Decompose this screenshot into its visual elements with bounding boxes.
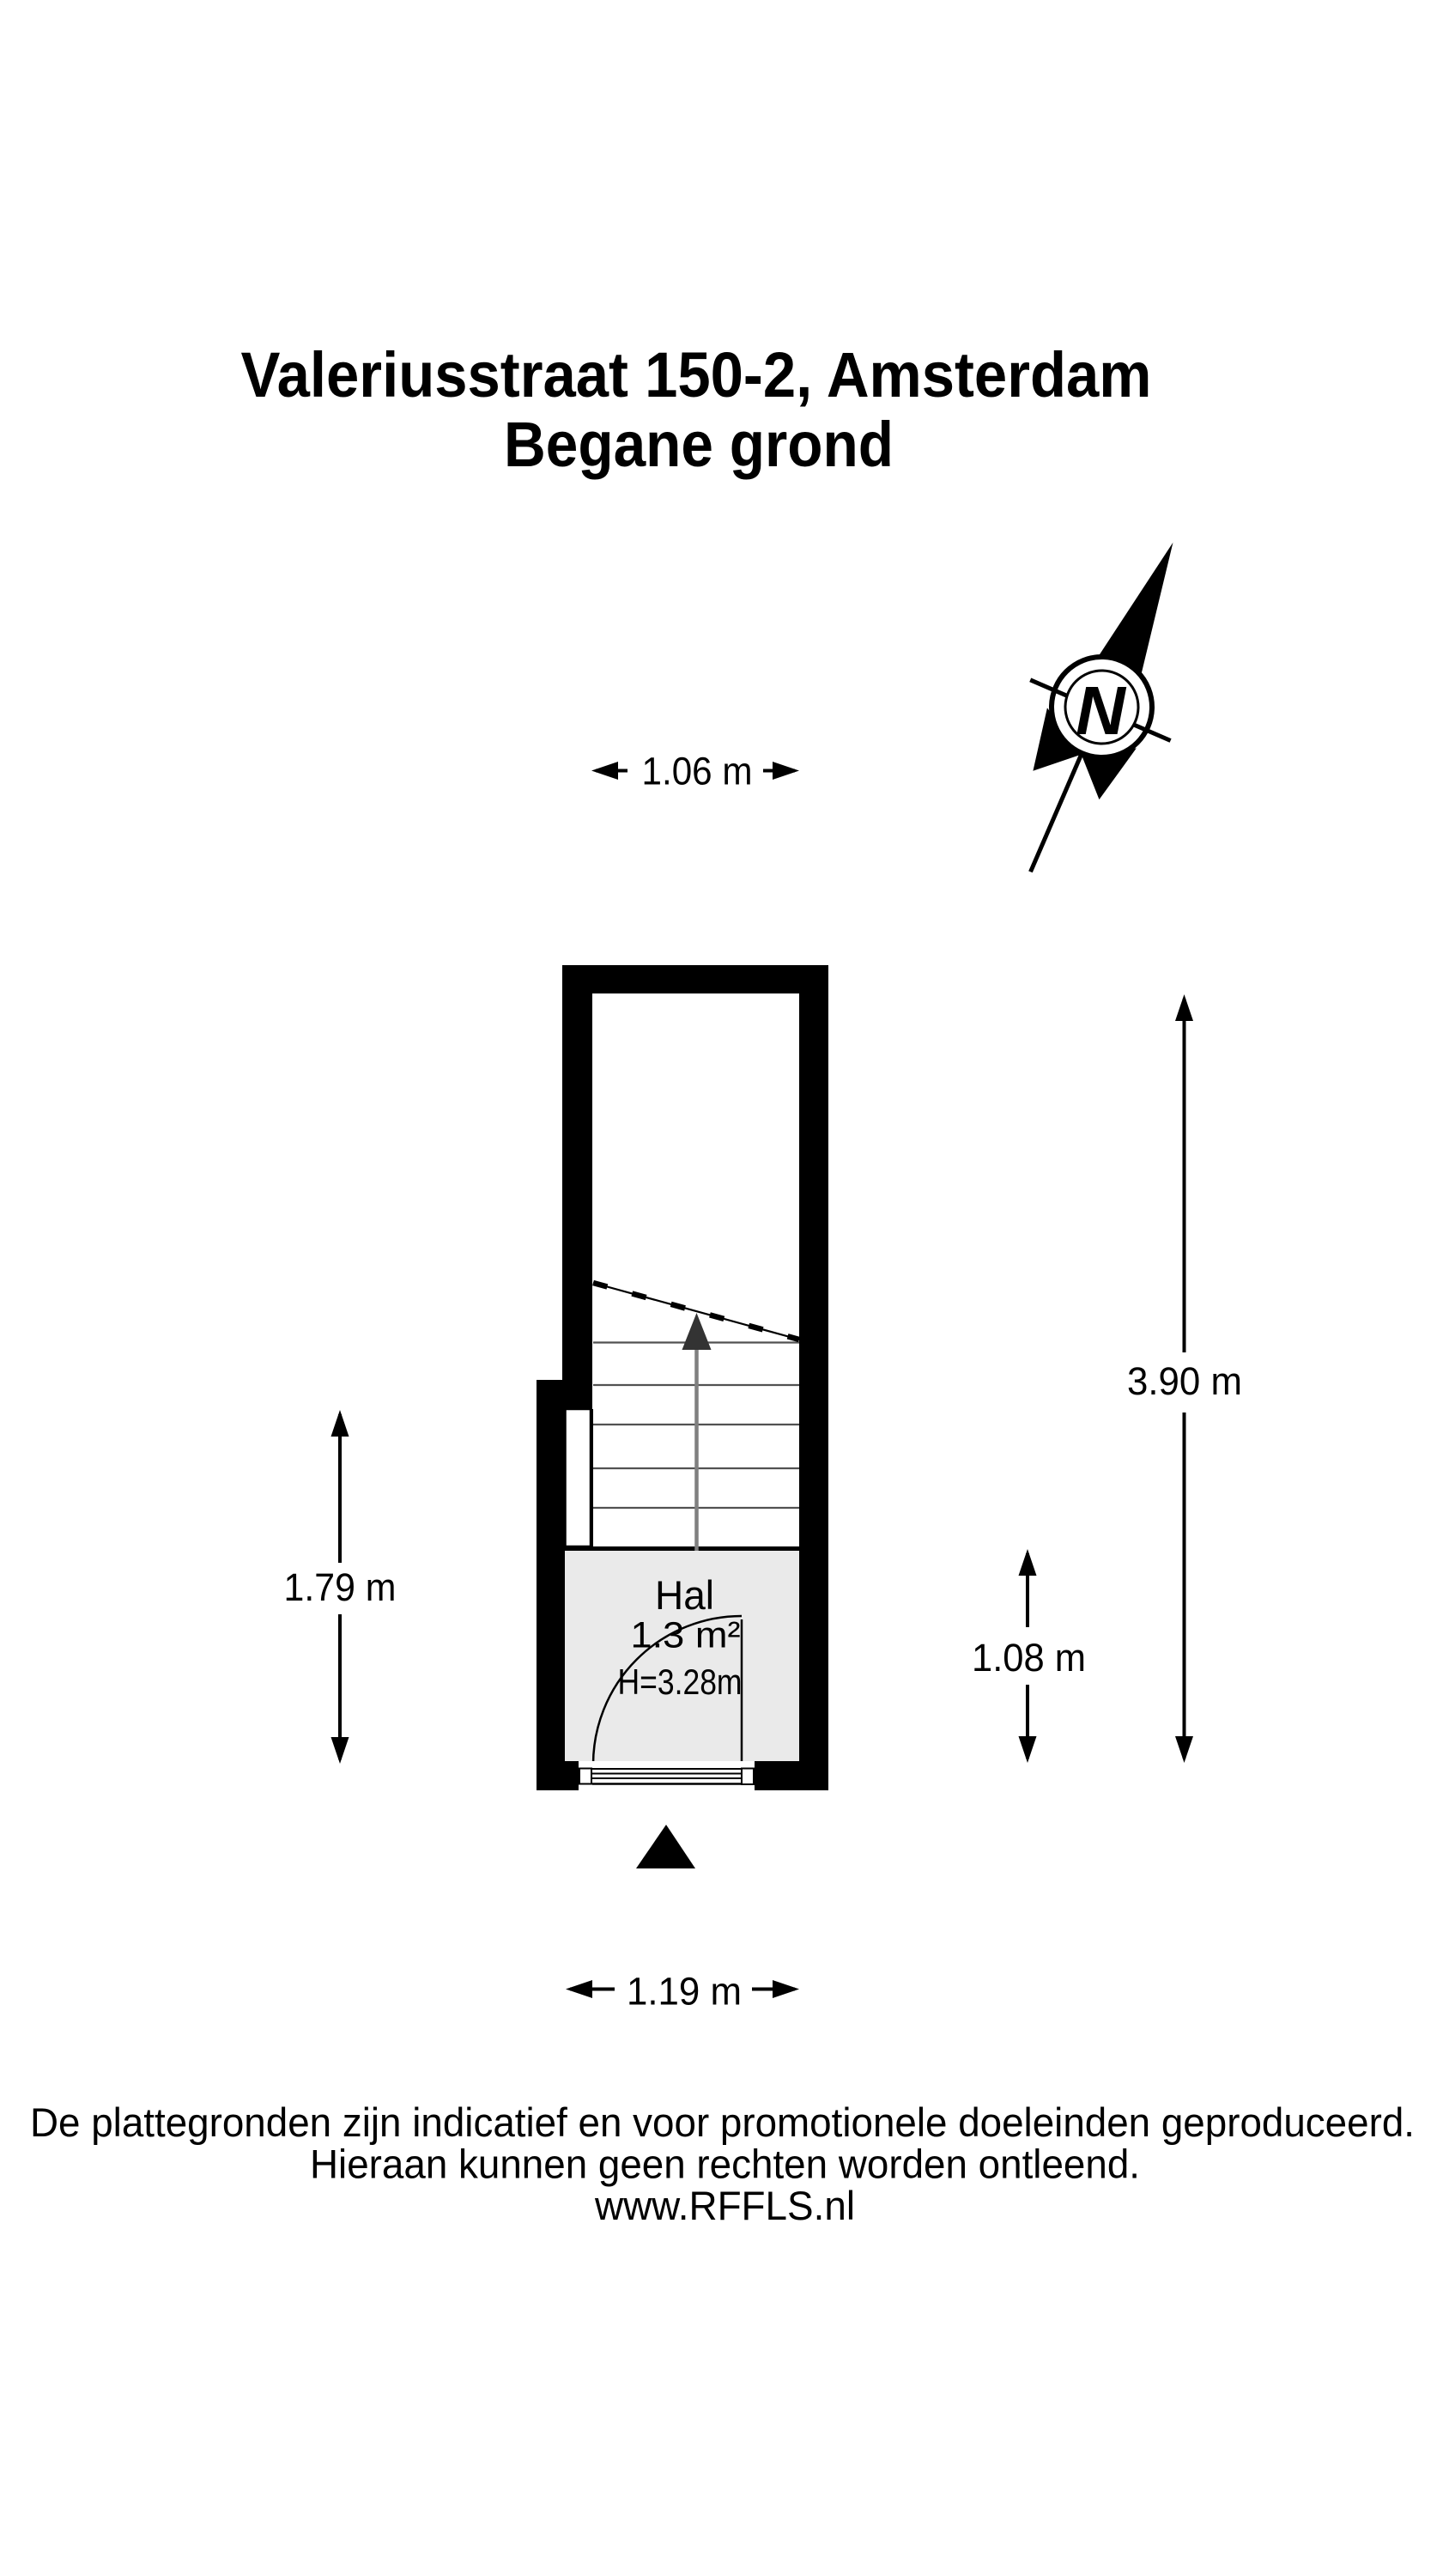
- svg-text:www.RFFLS.nl: www.RFFLS.nl: [594, 2183, 855, 2228]
- svg-text:1.08 m: 1.08 m: [972, 1636, 1086, 1680]
- svg-text:Hieraan kunnen geen rechten wo: Hieraan kunnen geen rechten worden ontle…: [310, 2142, 1140, 2187]
- svg-text:1.06 m: 1.06 m: [642, 750, 753, 793]
- svg-text:De plattegronden zijn indicati: De plattegronden zijn indicatief en voor…: [30, 2099, 1415, 2145]
- svg-text:1.19 m: 1.19 m: [627, 1970, 742, 2014]
- svg-text:3.90 m: 3.90 m: [1127, 1359, 1242, 1403]
- svg-text:N: N: [1076, 672, 1127, 749]
- svg-text:Hal: Hal: [655, 1572, 714, 1618]
- svg-text:H=3.28m: H=3.28m: [618, 1662, 743, 1702]
- svg-text:1.79 m: 1.79 m: [284, 1565, 397, 1609]
- svg-text:Begane grond: Begane grond: [504, 409, 894, 480]
- svg-text:Valeriusstraat 150-2, Amsterda: Valeriusstraat 150-2, Amsterdam: [241, 339, 1152, 410]
